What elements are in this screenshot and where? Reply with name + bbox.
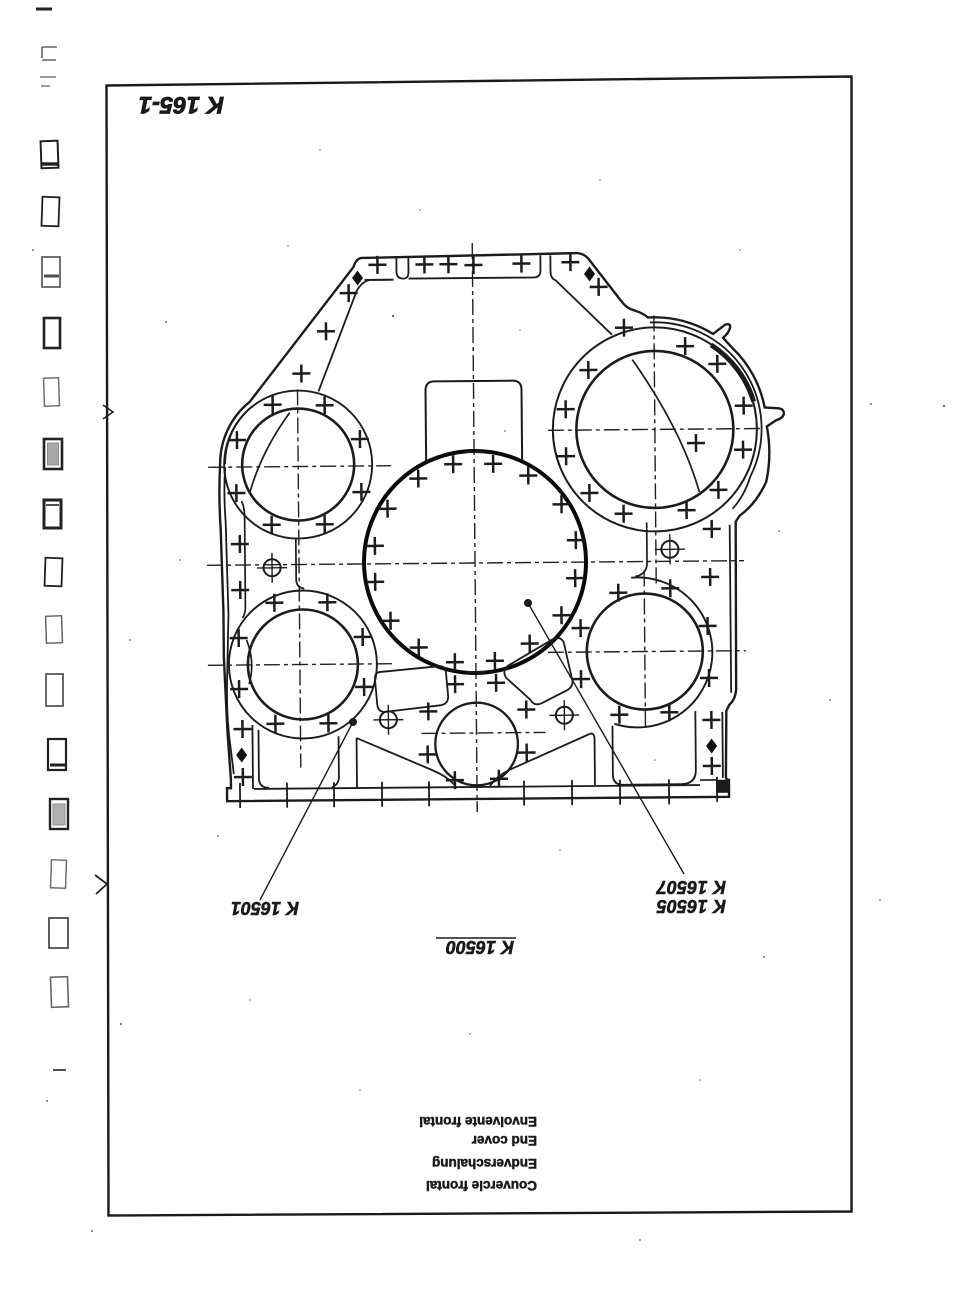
svg-text:K 16501: K 16501 bbox=[231, 898, 299, 918]
svg-text:K 16505: K 16505 bbox=[656, 896, 726, 916]
svg-text:K 16507: K 16507 bbox=[656, 877, 726, 897]
svg-text:Couvercle frontal: Couvercle frontal bbox=[426, 1178, 537, 1193]
svg-text:K 165-1: K 165-1 bbox=[139, 91, 224, 118]
svg-text:Envolvente frontal: Envolvente frontal bbox=[419, 1114, 537, 1129]
svg-text:K 16500: K 16500 bbox=[446, 937, 514, 957]
svg-text:End cover: End cover bbox=[471, 1133, 537, 1148]
svg-text:Endverschalung: Endverschalung bbox=[432, 1156, 537, 1171]
